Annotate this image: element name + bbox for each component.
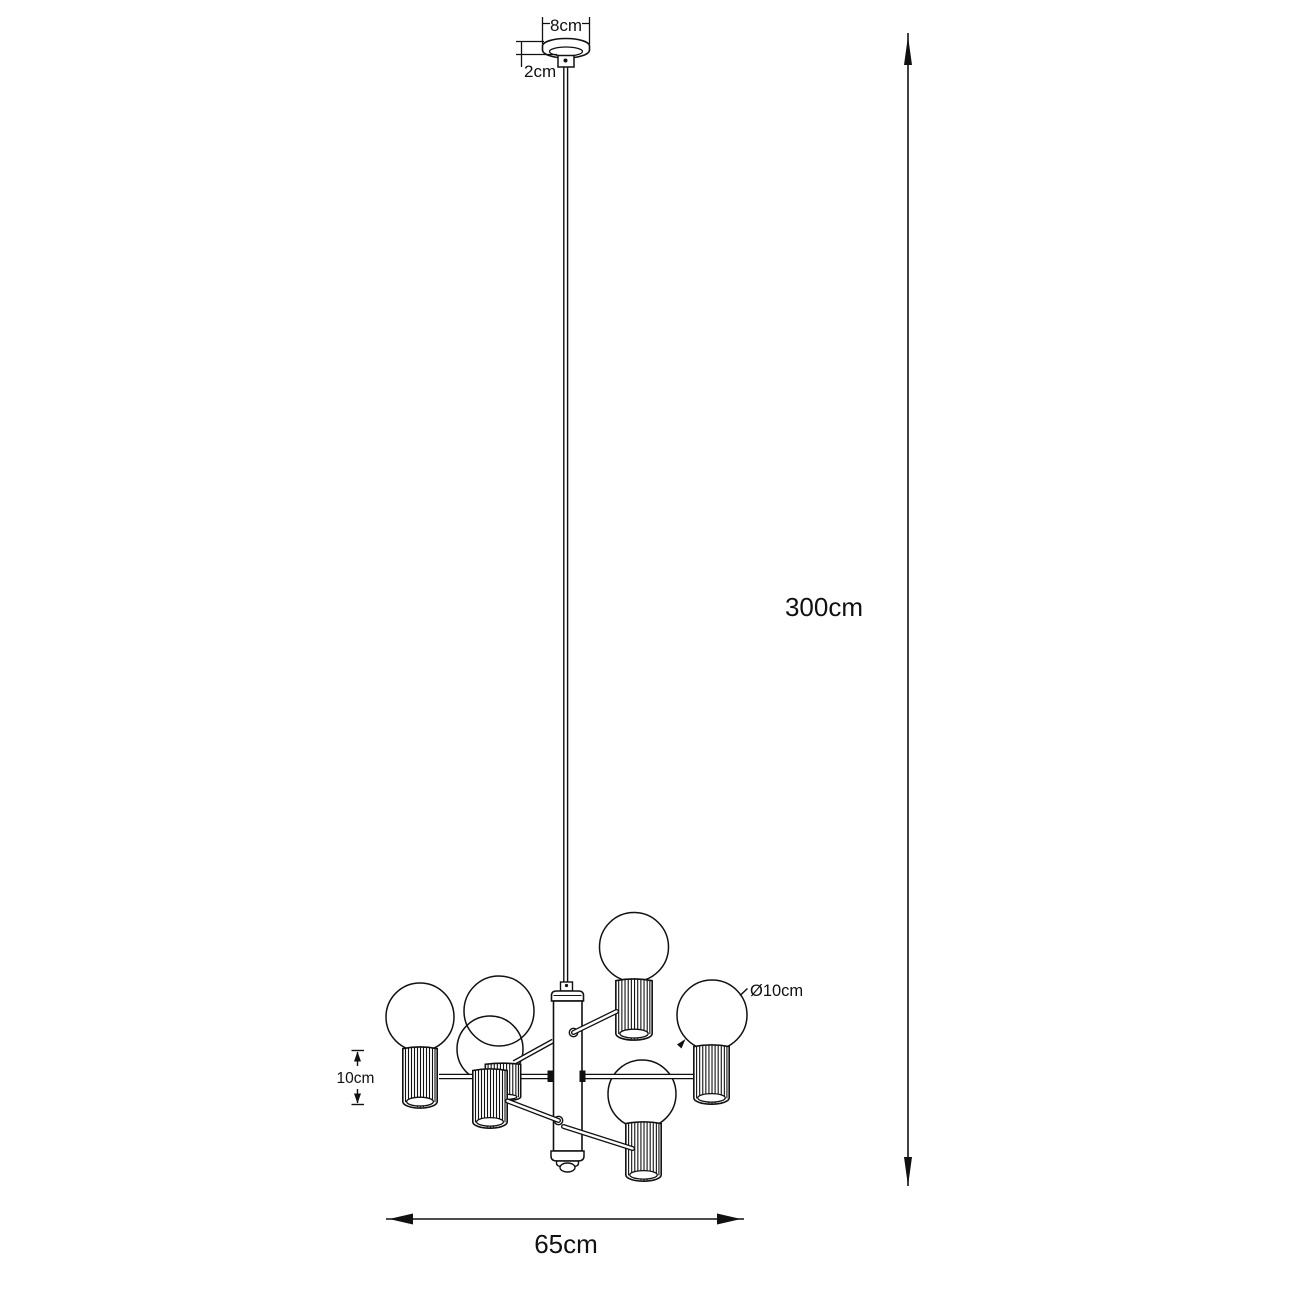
bulb-bottom [608,1060,676,1128]
arrow-up-icon [904,36,912,65]
arrow-left-icon [389,1214,413,1225]
arrow-down-icon [354,1094,361,1104]
canopy-height-label: 2cm [524,62,556,81]
cord-grip-screw [564,59,568,63]
fixture-width-label: 65cm [534,1229,598,1259]
bulb-top [600,913,669,982]
suspension-cord [564,67,568,982]
arrow-right-icon [717,1214,741,1225]
central-column [551,991,584,1172]
shade-right [694,1044,729,1104]
bulb-diameter-label: Ø10cm [750,982,803,1000]
arm-mount-right [580,1071,586,1083]
shade-top [616,978,652,1040]
dimension-drawing-canvas: 300cm 65cm 8cm 2cm [0,0,1300,1300]
bulb-far-left [386,983,454,1051]
canopy-width-label: 8cm [550,16,582,35]
arm-back-left [514,1041,553,1063]
arrow-down-icon [904,1157,912,1186]
dimension-suspension-height [904,33,912,1186]
shade-front-left [473,1068,507,1128]
bulb-right [677,980,747,1050]
arrow-up-icon [354,1052,361,1062]
suspension-height-label: 300cm [785,592,863,622]
shade-height-label: 10cm [337,1070,375,1087]
column-bottom-knob [560,1163,575,1172]
shade-far-left [403,1046,437,1108]
column-bottom-flange [551,1151,584,1161]
shade-bottom [626,1121,661,1181]
bulb-back-left [464,976,534,1046]
dimension-fixture-width [386,1214,744,1225]
arm-mount-left [548,1071,554,1083]
leader-arrow-icon [677,1039,686,1049]
cord-connector-screw [565,984,568,987]
